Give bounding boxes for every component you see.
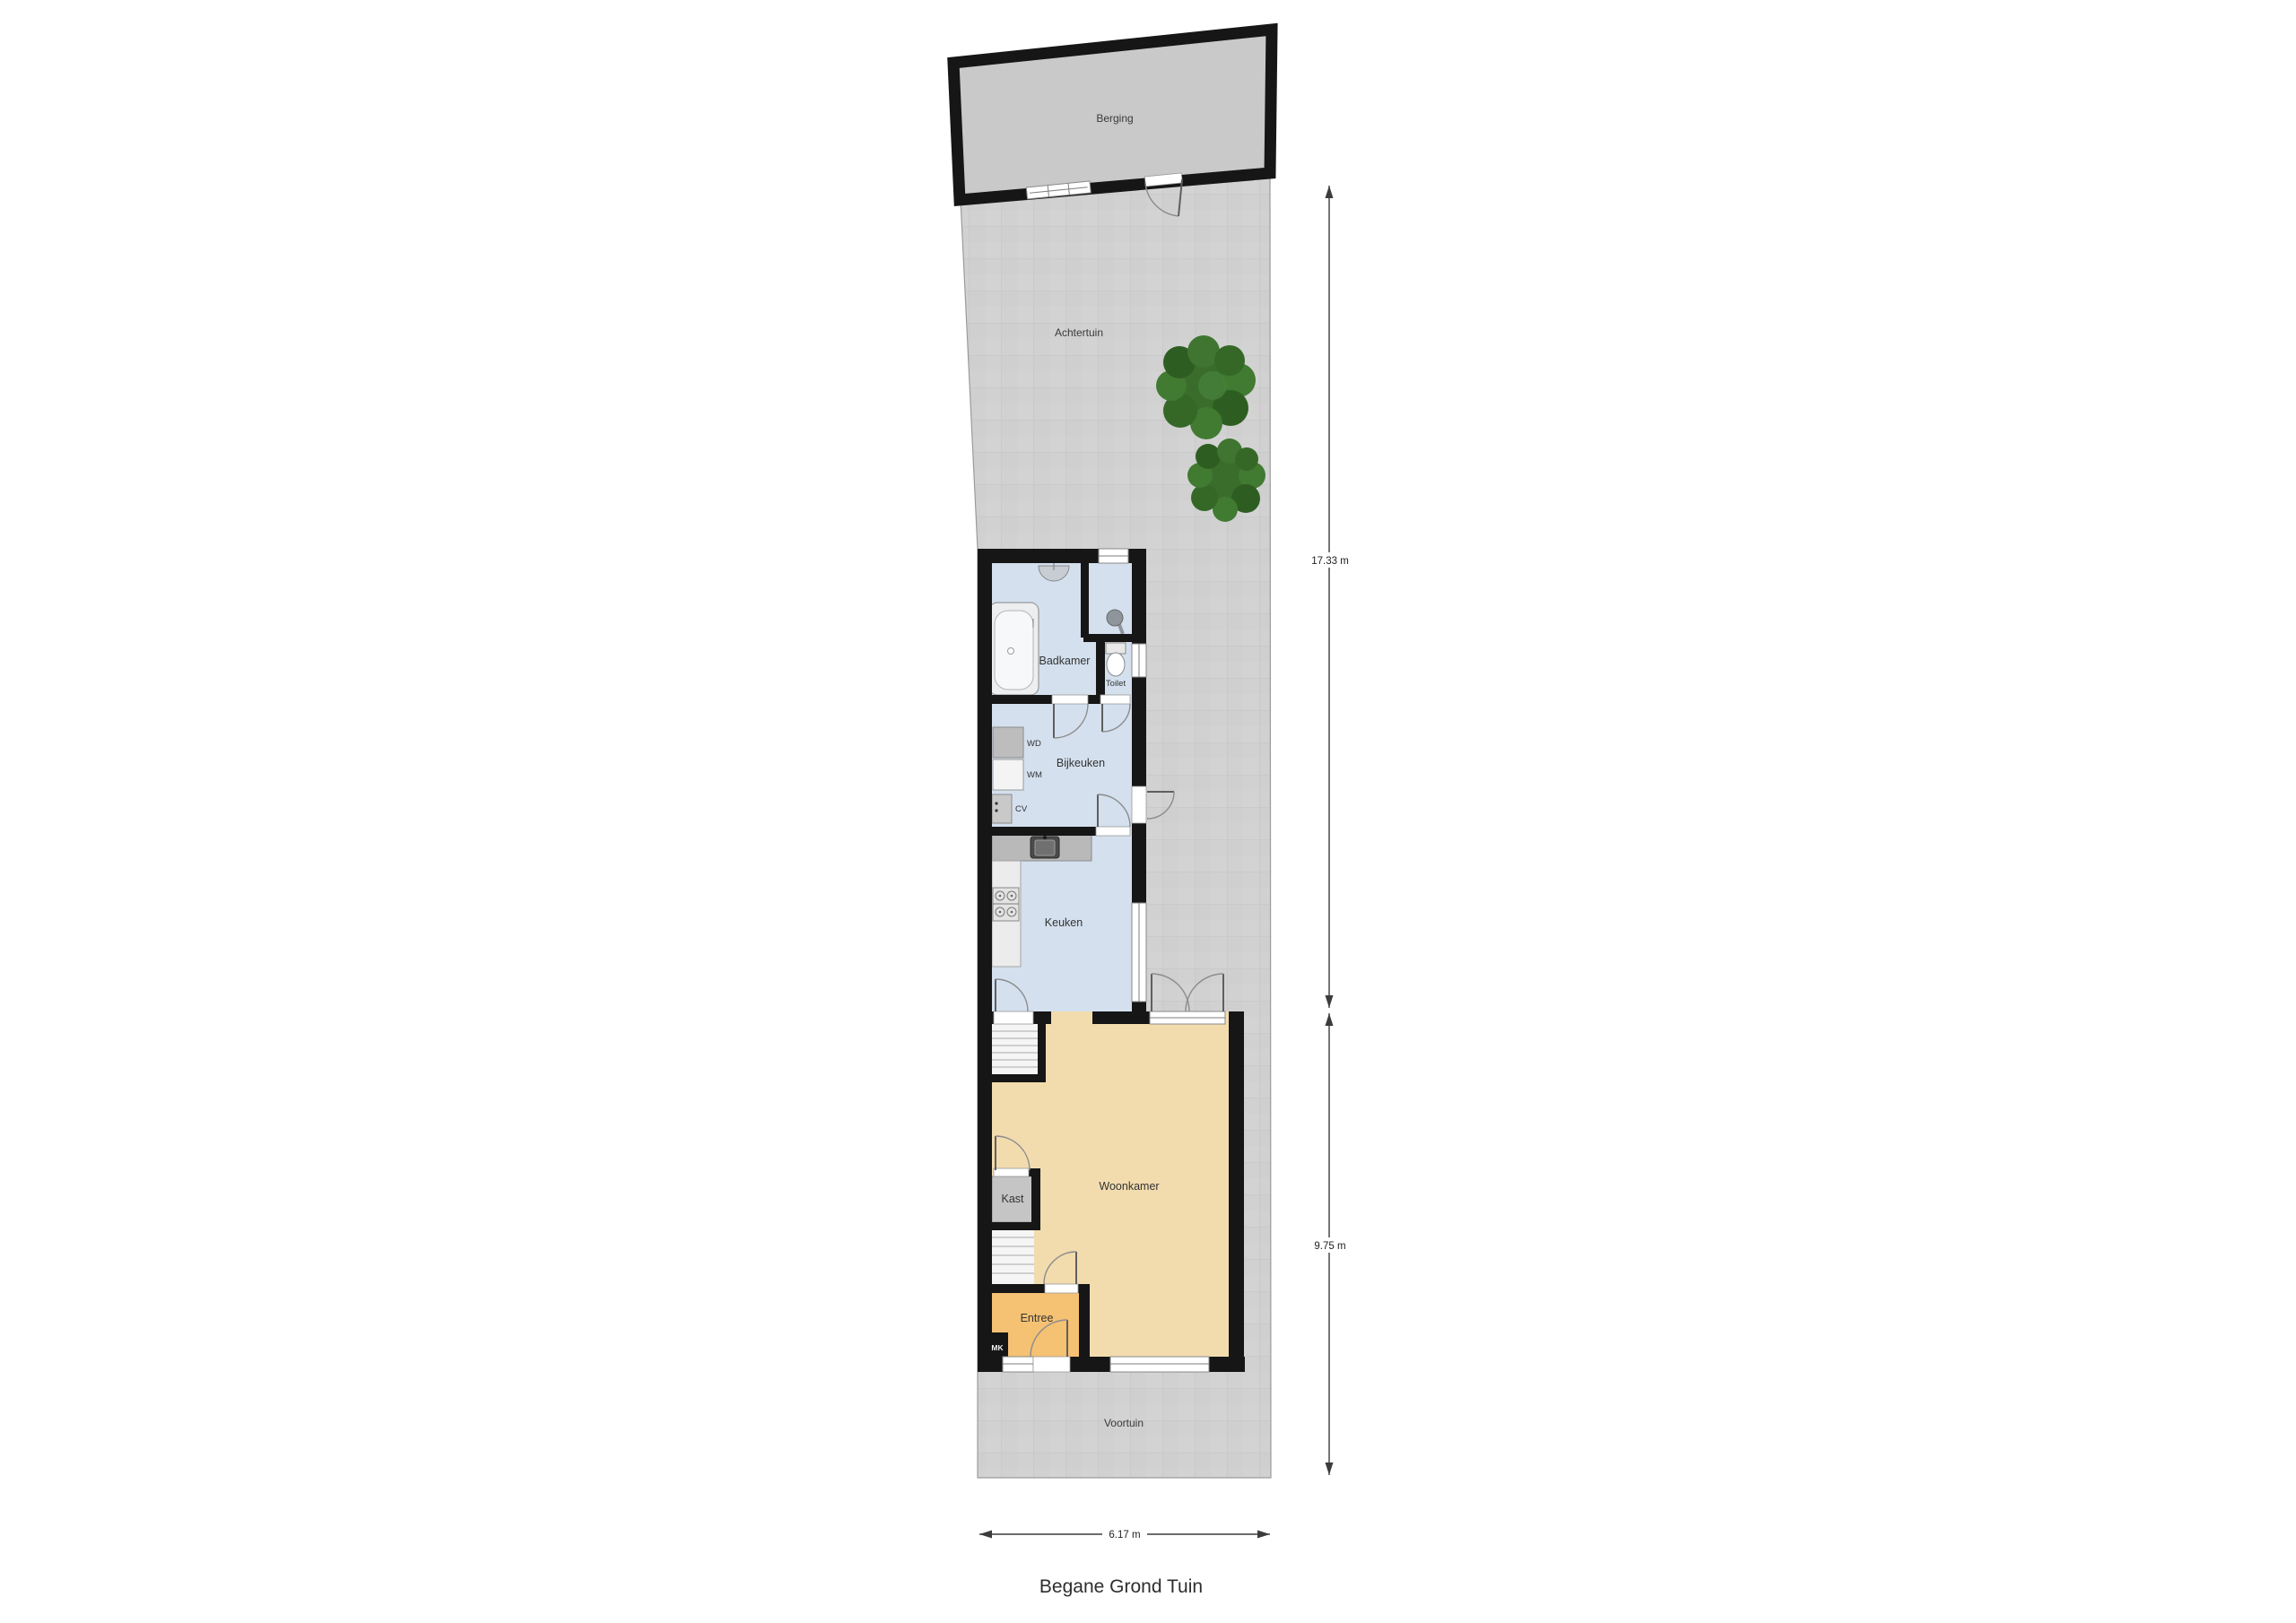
dim-6-17: 6.17 m bbox=[1109, 1530, 1140, 1541]
front-sidelight-window bbox=[1003, 1357, 1033, 1372]
page-title: Begane Grond Tuin bbox=[1039, 1576, 1203, 1597]
label-wm: WM bbox=[1027, 770, 1042, 780]
toilet-window bbox=[1132, 644, 1146, 677]
dimension-vertical-bottom: 9.75 m bbox=[1310, 1013, 1350, 1475]
dimension-horizontal: 6.17 m bbox=[979, 1526, 1270, 1541]
label-toilet: Toilet bbox=[1106, 679, 1126, 689]
label-mk: MK bbox=[991, 1343, 1004, 1352]
toilet-door-threshold bbox=[1100, 695, 1130, 704]
label-badkamer: Badkamer bbox=[1039, 655, 1091, 667]
bathtub bbox=[989, 603, 1039, 695]
label-kast: Kast bbox=[1001, 1193, 1024, 1205]
living-window bbox=[1110, 1357, 1209, 1372]
label-keuken: Keuken bbox=[1045, 916, 1083, 929]
keuken-door-threshold bbox=[994, 1011, 1033, 1024]
front-door-threshold bbox=[1033, 1357, 1070, 1372]
label-achtertuin: Achtertuin bbox=[1055, 326, 1103, 339]
label-entree: Entree bbox=[1021, 1312, 1054, 1324]
label-berging: Berging bbox=[1096, 112, 1133, 125]
stairs-lower bbox=[989, 1228, 1034, 1284]
dimension-vertical-top: 17.33 m bbox=[1309, 186, 1352, 1008]
kast-door-threshold bbox=[994, 1168, 1029, 1176]
label-voortuin: Voortuin bbox=[1104, 1417, 1144, 1429]
keuken-window bbox=[1132, 903, 1146, 1002]
floorplan-page: Berging Achtertuin Badkamer Toilet Bijke… bbox=[0, 0, 2296, 1623]
french-door-frame bbox=[1150, 1011, 1225, 1024]
stove bbox=[993, 888, 1019, 921]
dim-9-75: 9.75 m bbox=[1314, 1241, 1345, 1252]
dim-17-33: 17.33 m bbox=[1311, 556, 1349, 567]
bijkeuken-door-threshold bbox=[1132, 786, 1146, 823]
kitchen-sink bbox=[1031, 836, 1059, 858]
bathroom-top-window bbox=[1099, 549, 1128, 563]
bijkeuken-inner-door-threshold bbox=[1096, 827, 1130, 836]
label-bijkeuken: Bijkeuken bbox=[1057, 757, 1105, 769]
badkamer-door-threshold bbox=[1052, 695, 1088, 704]
boiler-cv bbox=[992, 794, 1012, 823]
entree-door-threshold bbox=[1045, 1284, 1078, 1293]
label-wd: WD bbox=[1027, 739, 1041, 749]
dryer-wd bbox=[993, 727, 1023, 758]
floorplan-drawing: Berging Achtertuin Badkamer Toilet Bijke… bbox=[0, 0, 2296, 1623]
stairs-upper bbox=[992, 1024, 1038, 1076]
toilet-fixture bbox=[1106, 643, 1126, 676]
tree-icon bbox=[1187, 438, 1265, 522]
washer-wm bbox=[993, 759, 1023, 790]
label-woonkamer: Woonkamer bbox=[1099, 1180, 1159, 1193]
label-cv: CV bbox=[1015, 804, 1028, 814]
